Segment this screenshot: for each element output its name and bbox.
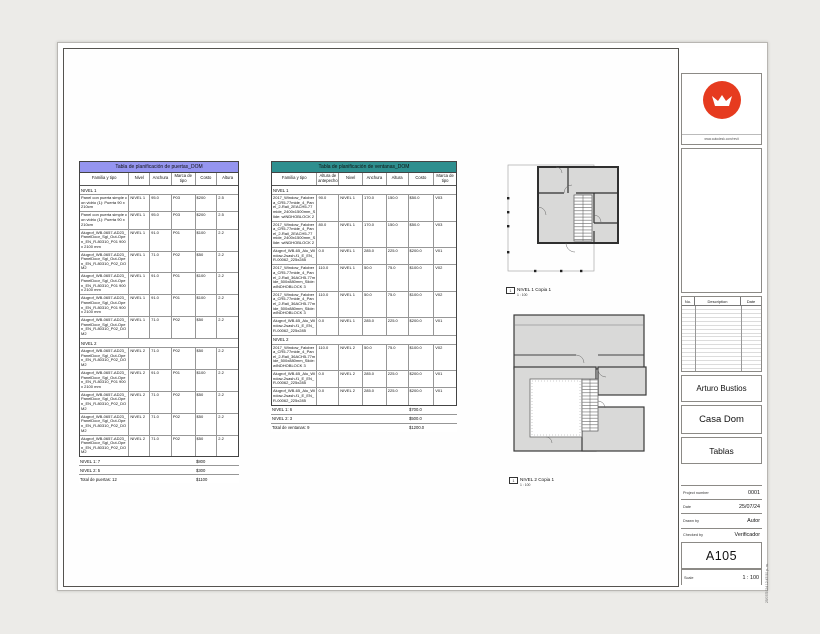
schedule-cell: 2.2 bbox=[217, 230, 238, 251]
schedule-cell: V02 bbox=[434, 345, 456, 370]
schedule-cell: 71.0 bbox=[150, 252, 172, 273]
schedule-column-header: Familia y tipo bbox=[80, 173, 129, 185]
schedule-cell: $50 bbox=[196, 414, 218, 435]
schedule-cell: 91.0 bbox=[150, 370, 172, 391]
schedule-cell: 2.2 bbox=[217, 348, 238, 369]
schedule-cell: P01 bbox=[172, 370, 196, 391]
schedule-column-header: Nivel bbox=[129, 173, 150, 185]
title-block: www.autodesk.com/revit No. Description D… bbox=[678, 48, 764, 587]
schedule-cell: 2.2 bbox=[217, 370, 238, 391]
project-number-value: 0001 bbox=[748, 490, 760, 496]
schedule-cell: 2017_Window_Falobera_CR5-77mide_4_Panel_… bbox=[272, 222, 317, 247]
schedule-cell: 2.2 bbox=[217, 317, 238, 338]
drawn-by-value: Autor bbox=[747, 518, 760, 524]
schedule-cell: 2017_Window_Falobera_CR5-77mide_4_Panel_… bbox=[272, 265, 317, 290]
schedule-cell: 2.2 bbox=[217, 295, 238, 316]
scale-label: Scale bbox=[684, 576, 694, 580]
schedule-total-value: $700.0 bbox=[409, 407, 435, 412]
schedule-cell: $100 bbox=[196, 273, 218, 294]
schedule-cell: NIVEL 1 bbox=[339, 265, 363, 290]
schedule-subtotal-row: NIVEL 2: 3$500.0 bbox=[271, 415, 457, 424]
schedule-cell: $50 bbox=[196, 348, 218, 369]
schedule-total-label: NIVEL 2: 3 bbox=[272, 416, 292, 421]
schedule-column-header: Familia y tipo bbox=[272, 173, 317, 185]
viewport-marker-icon: 1 bbox=[506, 287, 515, 294]
schedule-cell: Panel con puerta simple con vidrio (1): … bbox=[80, 212, 129, 228]
schedule-cell: 2.5 bbox=[217, 195, 238, 211]
schedule-cell: Alugrof_WB-0657-AD23_PanelDoor_Sgl_Out-O… bbox=[80, 230, 129, 251]
schedule-cell: P03 bbox=[172, 212, 196, 228]
schedule-cell: 150.0 bbox=[387, 222, 409, 247]
date-label: Date bbox=[683, 505, 691, 509]
schedule-row: 2017_Window_Falobera_CR5-77mide_4_Panel_… bbox=[272, 292, 456, 318]
schedule-row: Alugrof_WB-0657-AD23_PanelDoor_Sgl_Out-O… bbox=[80, 273, 238, 295]
schedule-cell: V03 bbox=[434, 195, 456, 220]
schedule-cell: 170.0 bbox=[363, 195, 387, 220]
schedule-cell: P02 bbox=[172, 414, 196, 435]
schedule-cell: P02 bbox=[172, 436, 196, 457]
schedule-cell: NIVEL 1 bbox=[339, 292, 363, 317]
schedule-cell: Alugrof_WB-0657-AD23_PanelDoor_Sgl_Out-O… bbox=[80, 436, 129, 457]
schedule-cell: $200 bbox=[196, 195, 218, 211]
schedule-cell: 285.0 bbox=[363, 388, 387, 404]
checked-by-field: Checked by Verificador bbox=[681, 528, 762, 542]
schedule-cell: Alugrof_WB-0657-AD23_PanelDoor_Sgl_Out-O… bbox=[80, 273, 129, 294]
schedule-cell: 71.0 bbox=[150, 317, 172, 338]
schedule-cell: V03 bbox=[434, 222, 456, 247]
schedule-cell: 2.2 bbox=[217, 252, 238, 273]
schedule-cell: 110.0 bbox=[317, 345, 339, 370]
schedule-row: Alugrof_WB-0657-AD23_PanelDoor_Sgl_Out-O… bbox=[80, 252, 238, 274]
schedule-cell: 50.0 bbox=[363, 292, 387, 317]
schedule-subtotal-row: NIVEL 1: 6$700.0 bbox=[271, 406, 457, 415]
revision-description-header: Description bbox=[695, 297, 741, 305]
consultant-box bbox=[681, 148, 762, 293]
schedule-column-header: Altura bbox=[217, 173, 238, 185]
schedule-cell: Alugrof_WB-0657-AD23_PanelDoor_Sgl_Out-O… bbox=[80, 348, 129, 369]
schedule-cell: $50 bbox=[196, 317, 218, 338]
viewport-name: NIVEL 1 Copia 1 bbox=[517, 287, 551, 292]
schedule-group-row: NIVEL 2 bbox=[80, 339, 238, 348]
schedule-cell: P01 bbox=[172, 295, 196, 316]
door-schedule-table[interactable]: Tabla de planificación de puertas_DOMFam… bbox=[79, 161, 239, 483]
schedule-cell: NIVEL 1 bbox=[129, 212, 150, 228]
schedule-cell: $200.0 bbox=[409, 371, 435, 387]
schedule-cell: $50 bbox=[196, 392, 218, 413]
schedule-cell: NIVEL 2 bbox=[129, 436, 150, 457]
schedule-total-value: $500.0 bbox=[409, 416, 435, 421]
schedule-cell: NIVEL 2 bbox=[339, 388, 363, 404]
window-schedule-table[interactable]: Tabla de planificación de ventanas_DOMFa… bbox=[271, 161, 457, 432]
schedule-cell: $100 bbox=[196, 370, 218, 391]
schedule-cell: Alugrof_WB-0657-AD23_PanelDoor_Sgl_Out-O… bbox=[80, 317, 129, 338]
client-name: Arturo Bustios bbox=[681, 375, 762, 402]
schedule-cell: NIVEL 1 bbox=[129, 295, 150, 316]
schedule-cell: $200 bbox=[196, 212, 218, 228]
schedule-cell: 75.0 bbox=[387, 345, 409, 370]
schedule-cell: 110.0 bbox=[317, 265, 339, 290]
schedule-cell: 285.0 bbox=[363, 248, 387, 264]
viewport-title-nivel-1: 1 NIVEL 1 Copia 1 1 : 100 bbox=[506, 287, 551, 297]
schedule-cell: NIVEL 1 bbox=[129, 252, 150, 273]
logo-box: www.autodesk.com/revit bbox=[681, 73, 762, 145]
schedule-row: Alugrof_WB-0657-AD23_PanelDoor_Sgl_Out-O… bbox=[80, 348, 238, 370]
schedule-cell: $200.0 bbox=[409, 388, 435, 404]
schedule-cell: $100 bbox=[196, 230, 218, 251]
scale-field: Scale 1 : 100 bbox=[681, 569, 762, 585]
schedule-row: 2017_Window_Falobera_CR5-77mide_4_Panel_… bbox=[272, 222, 456, 248]
viewport-name: NIVEL 2 Copia 1 bbox=[520, 477, 554, 482]
schedule-group-row: NIVEL 1 bbox=[272, 186, 456, 195]
schedule-cell: 150.0 bbox=[387, 195, 409, 220]
schedule-cell: 91.0 bbox=[150, 230, 172, 251]
schedule-cell: 50.0 bbox=[363, 345, 387, 370]
schedule-cell: P02 bbox=[172, 317, 196, 338]
schedule-row: 2017_Window_Falobera_CR5-77mide_4_Panel_… bbox=[272, 195, 456, 221]
schedule-cell: 225.0 bbox=[387, 248, 409, 264]
schedule-subtotal-row: NIVEL 2: 5$300 bbox=[79, 466, 239, 475]
schedule-column-header: Costo bbox=[409, 173, 435, 185]
schedule-title: Tabla de planificación de puertas_DOM bbox=[79, 161, 239, 172]
schedule-cell: 75.0 bbox=[387, 265, 409, 290]
schedule-header-row: Familia y tipoAltura de antepechoNivelAn… bbox=[272, 173, 456, 186]
floor-plan-nivel-2-drawing bbox=[506, 309, 656, 459]
viewport-title-nivel-2: 1 NIVEL 2 Copia 1 1 : 100 bbox=[509, 477, 554, 487]
schedule-cell: 225.0 bbox=[387, 371, 409, 387]
scale-value: 1 : 100 bbox=[743, 575, 760, 581]
schedule-row: Alugrof_WB-0657-AD23_PanelDoor_Sgl_Out-O… bbox=[80, 392, 238, 414]
schedule-cell: $100.0 bbox=[409, 292, 435, 317]
schedule-cell: Panel con puerta simple con vidrio (1): … bbox=[80, 195, 129, 211]
schedule-body: Familia y tipoAltura de antepechoNivelAn… bbox=[271, 172, 457, 406]
schedule-cell: 2017_Window_Falobera_CR5-77mide_4_Panel_… bbox=[272, 195, 317, 220]
drawing-sheet: Tabla de planificación de puertas_DOMFam… bbox=[57, 42, 768, 591]
schedule-total-value: $1200.0 bbox=[409, 425, 435, 430]
schedule-cell: NIVEL 1 bbox=[129, 273, 150, 294]
schedule-cell: $200.0 bbox=[409, 318, 435, 334]
schedule-row: Alugrof_WB-0657-AD23_PanelDoor_Sgl_Out-O… bbox=[80, 370, 238, 392]
schedule-column-header: Marca de tipo bbox=[172, 173, 196, 185]
schedule-total-row: Total de puertas: 12$1100 bbox=[79, 475, 239, 483]
schedule-cell: NIVEL 2 bbox=[129, 414, 150, 435]
company-logo-icon bbox=[702, 80, 742, 120]
schedule-cell: 225.0 bbox=[387, 388, 409, 404]
schedule-cell: 285.0 bbox=[363, 371, 387, 387]
schedule-cell: NIVEL 2 bbox=[339, 345, 363, 370]
drawn-by-label: Drawn by bbox=[683, 519, 699, 523]
schedule-title: Tabla de planificación de ventanas_DOM bbox=[271, 161, 457, 172]
schedule-column-header: Anchura bbox=[363, 173, 387, 185]
schedule-row: Alugrof_WB-0657-AD23_PanelDoor_Sgl_Out-O… bbox=[80, 295, 238, 317]
schedule-cell: Alugrof_WB-65_Alu_Window-2sash-f1_E_EN_R… bbox=[272, 248, 317, 264]
schedule-cell: V01 bbox=[434, 388, 456, 404]
schedule-cell: 80.0 bbox=[317, 222, 339, 247]
schedule-row: Alugrof_WB-0657-AD23_PanelDoor_Sgl_Out-O… bbox=[80, 414, 238, 436]
schedule-cell: V01 bbox=[434, 248, 456, 264]
project-number-field: Project number 0001 bbox=[681, 485, 762, 499]
schedule-body: Familia y tipoNivelAnchuraMarca de tipoC… bbox=[79, 172, 239, 457]
schedule-cell: $200.0 bbox=[409, 248, 435, 264]
schedule-cell: 90.0 bbox=[317, 195, 339, 220]
schedule-column-header: Altura bbox=[387, 173, 409, 185]
schedule-cell: NIVEL 1 bbox=[339, 195, 363, 220]
schedule-group-row: NIVEL 2 bbox=[272, 336, 456, 345]
schedule-cell: NIVEL 2 bbox=[129, 370, 150, 391]
schedule-row: Alugrof_WB-0657-AD23_PanelDoor_Sgl_Out-O… bbox=[80, 230, 238, 252]
schedule-row: 2017_Window_Falobera_CR5-77mide_4_Panel_… bbox=[272, 265, 456, 291]
schedule-total-label: Total de ventanas: 9 bbox=[272, 425, 309, 430]
schedule-cell: 2.2 bbox=[217, 392, 238, 413]
schedule-cell: 2.2 bbox=[217, 436, 238, 457]
revision-table: No. Description Date bbox=[681, 296, 762, 372]
schedule-cell: NIVEL 1 bbox=[129, 195, 150, 211]
floor-plan-nivel-1-drawing bbox=[504, 159, 628, 283]
schedule-group-row: NIVEL 1 bbox=[80, 186, 238, 195]
project-info-box: Project number 0001 Date 25/07/24 Drawn … bbox=[681, 485, 762, 542]
schedule-cell: NIVEL 1 bbox=[129, 230, 150, 251]
schedule-cell: P01 bbox=[172, 273, 196, 294]
schedule-cell: 110.0 bbox=[317, 292, 339, 317]
schedule-cell: 2.2 bbox=[217, 414, 238, 435]
schedule-cell: 75.0 bbox=[387, 292, 409, 317]
schedule-cell: Alugrof_WB-0657-AD23_PanelDoor_Sgl_Out-O… bbox=[80, 252, 129, 273]
schedule-total-label: NIVEL 1: 6 bbox=[272, 407, 292, 412]
schedule-cell: 71.0 bbox=[150, 348, 172, 369]
schedule-total-label: Total de puertas: 12 bbox=[80, 477, 117, 482]
schedule-cell: 50.0 bbox=[363, 265, 387, 290]
schedule-cell: NIVEL 1 bbox=[129, 317, 150, 338]
schedule-cell: 0.0 bbox=[317, 388, 339, 404]
schedule-row: Panel con puerta simple con vidrio (1): … bbox=[80, 212, 238, 229]
schedule-row: Panel con puerta simple con vidrio (1): … bbox=[80, 195, 238, 212]
schedule-cell: NIVEL 1 bbox=[339, 318, 363, 334]
checked-by-value: Verificador bbox=[735, 532, 760, 538]
schedule-cell: $50 bbox=[196, 436, 218, 457]
schedule-cell: $100 bbox=[196, 295, 218, 316]
date-value: 25/07/24 bbox=[739, 504, 760, 510]
revision-table-rows bbox=[682, 306, 761, 371]
revision-date-header: Date bbox=[741, 297, 761, 305]
page-background: Tabla de planificación de puertas_DOMFam… bbox=[0, 0, 820, 634]
schedule-cell: $50.0 bbox=[409, 195, 435, 220]
schedule-column-header: Anchura bbox=[150, 173, 172, 185]
schedule-cell: Alugrof_WB-0657-AD23_PanelDoor_Sgl_Out-O… bbox=[80, 370, 129, 391]
schedule-cell: 0.0 bbox=[317, 318, 339, 334]
project-number-label: Project number bbox=[683, 491, 709, 495]
schedule-cell: V01 bbox=[434, 371, 456, 387]
schedule-cell: 2.2 bbox=[217, 273, 238, 294]
schedule-row: Alugrof_WB-65_Alu_Window-2sash-f1_E_EN_R… bbox=[272, 318, 456, 335]
schedule-total-label: NIVEL 2: 5 bbox=[80, 468, 100, 473]
schedule-cell: 170.0 bbox=[363, 222, 387, 247]
viewport-marker-icon: 1 bbox=[509, 477, 518, 484]
schedule-cell: 225.0 bbox=[387, 318, 409, 334]
schedule-cell: P03 bbox=[172, 195, 196, 211]
schedule-column-header: Marca de tipo bbox=[434, 173, 456, 185]
schedule-cell: P02 bbox=[172, 252, 196, 273]
schedule-cell: 2.5 bbox=[217, 212, 238, 228]
schedule-column-header: Nivel bbox=[339, 173, 363, 185]
schedule-cell: Alugrof_WB-65_Alu_Window-2sash-f1_E_EN_R… bbox=[272, 318, 317, 334]
print-timestamp: 25/07/2024 12:47:50 p. m. bbox=[765, 468, 769, 603]
schedule-cell: 71.0 bbox=[150, 414, 172, 435]
schedule-cell: $50 bbox=[196, 252, 218, 273]
schedule-cell: 285.0 bbox=[363, 318, 387, 334]
schedule-cell: P01 bbox=[172, 230, 196, 251]
project-name: Casa Dom bbox=[681, 405, 762, 434]
schedule-cell: P02 bbox=[172, 392, 196, 413]
logo-caption: www.autodesk.com/revit bbox=[682, 134, 761, 141]
schedule-cell: NIVEL 2 bbox=[129, 348, 150, 369]
schedule-total-value: $800 bbox=[196, 459, 218, 464]
schedule-cell: 0.0 bbox=[317, 248, 339, 264]
schedule-cell: 95.0 bbox=[150, 212, 172, 228]
sheet-name: Tablas bbox=[681, 437, 762, 464]
schedule-cell: Alugrof_WB-65_Alu_Window-2sash-f1_E_EN_R… bbox=[272, 388, 317, 404]
schedule-row: 2017_Window_Falobera_CR5-77mide_4_Panel_… bbox=[272, 345, 456, 371]
schedule-cell: $100.0 bbox=[409, 345, 435, 370]
sheet-number: A105 bbox=[681, 542, 762, 569]
schedule-column-header: Altura de antepecho bbox=[317, 173, 339, 185]
schedule-total-value: $1100 bbox=[196, 477, 218, 482]
schedule-cell: 71.0 bbox=[150, 436, 172, 457]
viewport-scale: 1 : 100 bbox=[520, 483, 554, 487]
schedule-row: Alugrof_WB-65_Alu_Window-2sash-f1_E_EN_R… bbox=[272, 388, 456, 404]
schedule-cell: 91.0 bbox=[150, 295, 172, 316]
drawn-by-field: Drawn by Autor bbox=[681, 513, 762, 527]
schedule-cell: NIVEL 1 bbox=[339, 222, 363, 247]
schedule-cell: Alugrof_WB-0657-AD23_PanelDoor_Sgl_Out-O… bbox=[80, 392, 129, 413]
schedule-cell: Alugrof_WB-0657-AD23_PanelDoor_Sgl_Out-O… bbox=[80, 414, 129, 435]
schedule-total-value: $300 bbox=[196, 468, 218, 473]
schedule-cell: $50.0 bbox=[409, 222, 435, 247]
checked-by-label: Checked by bbox=[683, 533, 703, 537]
schedule-cell: NIVEL 1 bbox=[339, 248, 363, 264]
schedule-cell: 71.0 bbox=[150, 392, 172, 413]
schedule-header-row: Familia y tipoNivelAnchuraMarca de tipoC… bbox=[80, 173, 238, 186]
schedule-cell: Alugrof_WB-65_Alu_Window-2sash-f1_E_EN_R… bbox=[272, 371, 317, 387]
viewport-scale: 1 : 100 bbox=[517, 293, 551, 297]
schedule-cell: 91.0 bbox=[150, 273, 172, 294]
schedule-row: Alugrof_WB-65_Alu_Window-2sash-f1_E_EN_R… bbox=[272, 371, 456, 388]
schedule-cell: NIVEL 2 bbox=[129, 392, 150, 413]
floor-plan-viewport-nivel-2[interactable] bbox=[506, 309, 656, 459]
schedule-cell: 0.0 bbox=[317, 371, 339, 387]
schedule-cell: Alugrof_WB-0657-AD23_PanelDoor_Sgl_Out-O… bbox=[80, 295, 129, 316]
schedule-cell: $100.0 bbox=[409, 265, 435, 290]
schedule-cell: 2017_Window_Falobera_CR5-77mide_4_Panel_… bbox=[272, 292, 317, 317]
schedule-total-row: Total de ventanas: 9$1200.0 bbox=[271, 424, 457, 432]
schedule-cell: V02 bbox=[434, 292, 456, 317]
schedule-cell: 2017_Window_Falobera_CR5-77mide_4_Panel_… bbox=[272, 345, 317, 370]
schedule-cell: V02 bbox=[434, 265, 456, 290]
schedule-row: Alugrof_WB-0657-AD23_PanelDoor_Sgl_Out-O… bbox=[80, 317, 238, 339]
floor-plan-viewport-nivel-1[interactable] bbox=[504, 159, 628, 283]
schedule-cell: 95.0 bbox=[150, 195, 172, 211]
schedule-row: Alugrof_WB-0657-AD23_PanelDoor_Sgl_Out-O… bbox=[80, 436, 238, 457]
schedule-cell: NIVEL 2 bbox=[339, 371, 363, 387]
schedule-column-header: Costo bbox=[196, 173, 218, 185]
revision-no-header: No. bbox=[682, 297, 695, 305]
date-field: Date 25/07/24 bbox=[681, 499, 762, 513]
schedule-subtotal-row: NIVEL 1: 7$800 bbox=[79, 457, 239, 466]
schedule-total-label: NIVEL 1: 7 bbox=[80, 459, 100, 464]
schedule-cell: P02 bbox=[172, 348, 196, 369]
schedule-cell: V01 bbox=[434, 318, 456, 334]
schedule-row: Alugrof_WB-65_Alu_Window-2sash-f1_E_EN_R… bbox=[272, 248, 456, 265]
revision-table-header: No. Description Date bbox=[682, 297, 761, 306]
